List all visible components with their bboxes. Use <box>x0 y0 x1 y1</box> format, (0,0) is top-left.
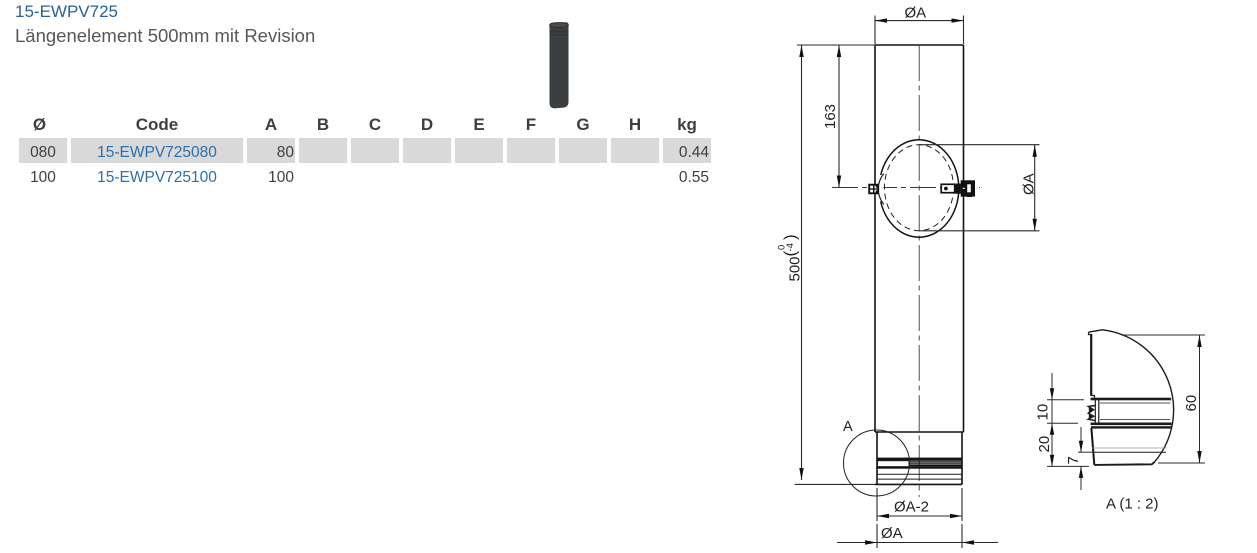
svg-text:7: 7 <box>1065 456 1082 464</box>
svg-text:-4: -4 <box>785 243 796 251</box>
svg-text:ØA: ØA <box>1021 173 1038 195</box>
svg-text:ØA: ØA <box>905 5 927 22</box>
svg-text:): ) <box>781 234 800 240</box>
svg-text:60: 60 <box>1183 395 1200 412</box>
svg-text:A (1 : 2): A (1 : 2) <box>1106 496 1159 513</box>
svg-text:163: 163 <box>822 104 839 129</box>
svg-text:500: 500 <box>787 256 804 281</box>
svg-text:10: 10 <box>1034 404 1051 421</box>
svg-text:20: 20 <box>1036 436 1053 453</box>
svg-text:A: A <box>843 419 853 435</box>
svg-text:ØA: ØA <box>881 525 903 542</box>
svg-text:ØA-2: ØA-2 <box>894 499 929 516</box>
